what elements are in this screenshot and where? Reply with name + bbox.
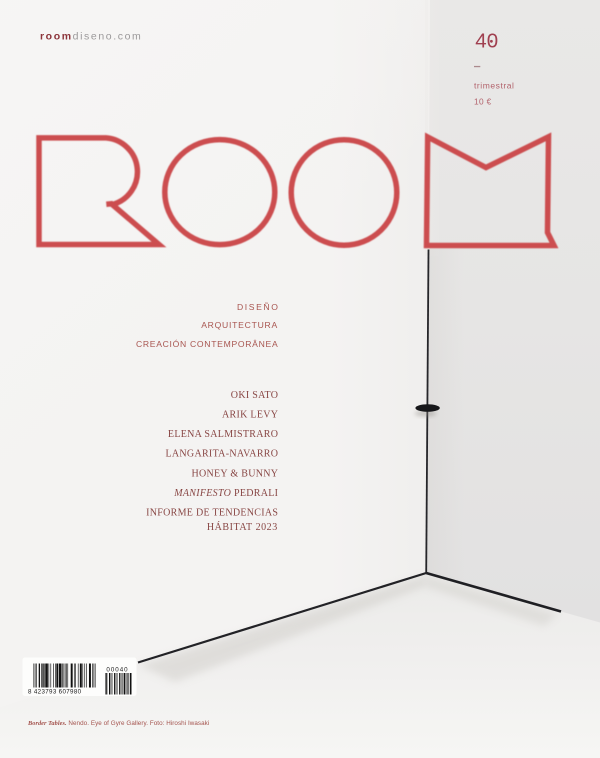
svg-text:8 423793 607980: 8 423793 607980 (28, 689, 82, 696)
svg-text:LANGARITA-NAVARRO: LANGARITA-NAVARRO (165, 449, 278, 460)
svg-text:HONEY & BUNNY: HONEY & BUNNY (191, 468, 278, 479)
svg-text:trimestral: trimestral (474, 80, 514, 90)
svg-text:CREACIÓN CONTEMPORÂNEA: CREACIÓN CONTEMPORÂNEA (136, 339, 278, 349)
svg-text:HÁBITAT 2023: HÁBITAT 2023 (207, 521, 278, 533)
svg-text:MANIFESTO PEDRALI: MANIFESTO PEDRALI (173, 488, 278, 499)
svg-text:ELENA SALMISTRARO: ELENA SALMISTRARO (168, 429, 278, 440)
svg-text:OKI SATO: OKI SATO (231, 390, 279, 401)
svg-text:00040: 00040 (106, 666, 128, 673)
svg-text:DISEÑO: DISEÑO (237, 302, 280, 312)
svg-text:ARQUITECTURA: ARQUITECTURA (201, 320, 278, 330)
svg-text:10 €: 10 € (474, 97, 492, 107)
svg-text:INFORME DE TENDENCIAS: INFORME DE TENDENCIAS (146, 508, 278, 519)
svg-text:Border Tables. Nendo. Eye of G: Border Tables. Nendo. Eye of Gyre Galler… (27, 720, 209, 727)
svg-text:40: 40 (475, 30, 498, 53)
svg-text:roomdiseno.com: roomdiseno.com (40, 31, 142, 43)
svg-text:ARIK LEVY: ARIK LEVY (222, 409, 278, 420)
